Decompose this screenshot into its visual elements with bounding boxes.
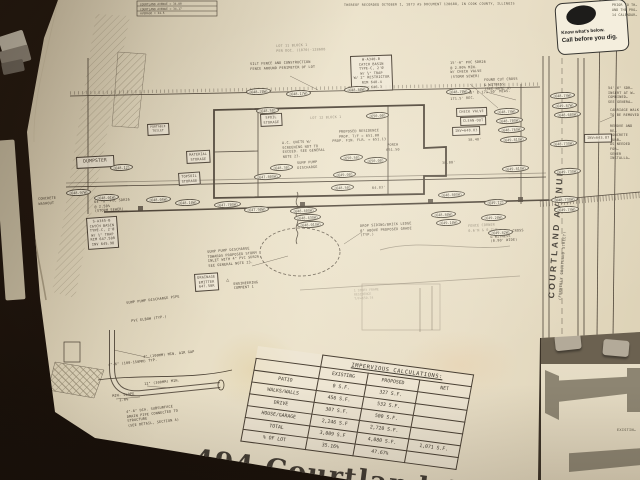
invert-label: INV=648.83 <box>452 126 481 136</box>
sticker-line1: Know what's below. <box>561 27 605 35</box>
benchmark-line: AVERAGE = 34.5 <box>140 11 182 16</box>
adjacent-sheet: EXISTIN… <box>538 328 640 480</box>
curb-replace-note: REMOVE AND RE… CONCRETE CURB… AS NEEDED … <box>610 124 640 161</box>
engineering-comment-note: △ENGINEERING COMMENT 1 <box>233 275 259 290</box>
binder-clip <box>602 339 629 357</box>
carriage-walk-note: CARRIAGE WALK TO BE REMOVED <box>610 108 639 117</box>
dimension-38-48: 38.48' <box>468 137 482 142</box>
found-cross-note: FOUND CUT CROSS & WITNESS (SEE NOTE 4) <box>484 77 518 92</box>
portable-toilet-label: PORTABLE TOILET <box>147 123 169 136</box>
engineering-comment-text: ENGINEERING COMMENT 1 <box>233 280 258 290</box>
section-profile <box>627 368 640 412</box>
material-storage-label: MATERIAL STORAGE <box>186 150 211 164</box>
sewer-service-note: 54'-6" SDR… INSERT AT W… COMBINED… SEE G… <box>608 86 635 104</box>
check-valve-label: CHECK VALVE <box>456 107 487 117</box>
concrete-washout-label: CONCRETE WASHOUT <box>38 196 57 206</box>
benchmark-table: COURTLAND AVENUE = 34.80 COURTLAND AVENU… <box>140 2 182 17</box>
rolled-sheet-edge <box>0 139 26 300</box>
dimension-38-00: 38.00' <box>442 160 456 165</box>
invert-label-2: INV=643.87 <box>584 134 613 143</box>
proposed-residence-label: PROPOSED RESIDENCE PROP. T/F = 651.00 PR… <box>332 128 386 144</box>
check-valve-sewer-note: 15'-6" PVC SDR26 @ 2.00% MIN. W/ CHECK V… <box>450 60 486 80</box>
drainage-emitter-label: DRAINAGE EMITTER 647.50R <box>194 272 219 291</box>
section-profile <box>569 448 640 472</box>
margin-note: PRIOR TO TH… AND THE PRO… 14 CALENDAR… <box>612 3 637 17</box>
porch-label: PORCH 651.50 <box>386 143 400 153</box>
clean-out-label: CLEAN-OUT <box>460 116 486 126</box>
photo-of-site-plan: EXISTIN… <box>0 0 640 480</box>
spoil-storage-label: SPOIL STORAGE <box>260 113 282 127</box>
revision-triangle-icon: △ <box>226 277 230 284</box>
call-811-logo <box>565 3 598 28</box>
dimension-64-83: 64.83' <box>372 185 386 190</box>
catch-basin-s-note: S-A345-B CATCH BASIN TYPE-C, 2'Ø W/ ¼" T… <box>86 216 119 250</box>
ac-units-note: A.C. UNITS W/ SCREENING NOT TO EXCEED. S… <box>282 139 325 160</box>
dumpster-label: DUMPSTER <box>76 155 114 169</box>
lot-11-note: LOT 11 BLOCK 1 PER DOC. (1870)-128688 <box>276 42 326 53</box>
sump-pump-discharge-label: SUMP PUMP DISCHARGE <box>297 160 318 170</box>
topsoil-storage-label: TOPSOIL STORAGE <box>178 171 201 186</box>
sticker-line2: Call before you dig. <box>562 34 618 44</box>
ghost-residence-text: 1 STORY FRAME RESIDENCE T/F=650.74 <box>354 287 380 300</box>
adjacent-sheet-label: EXISTIN… <box>617 428 636 432</box>
section-profile <box>545 370 559 420</box>
drop-siding-note: DROP SIDING/BRICK LEDGE 6" ABOVE PROPOSE… <box>360 221 412 237</box>
